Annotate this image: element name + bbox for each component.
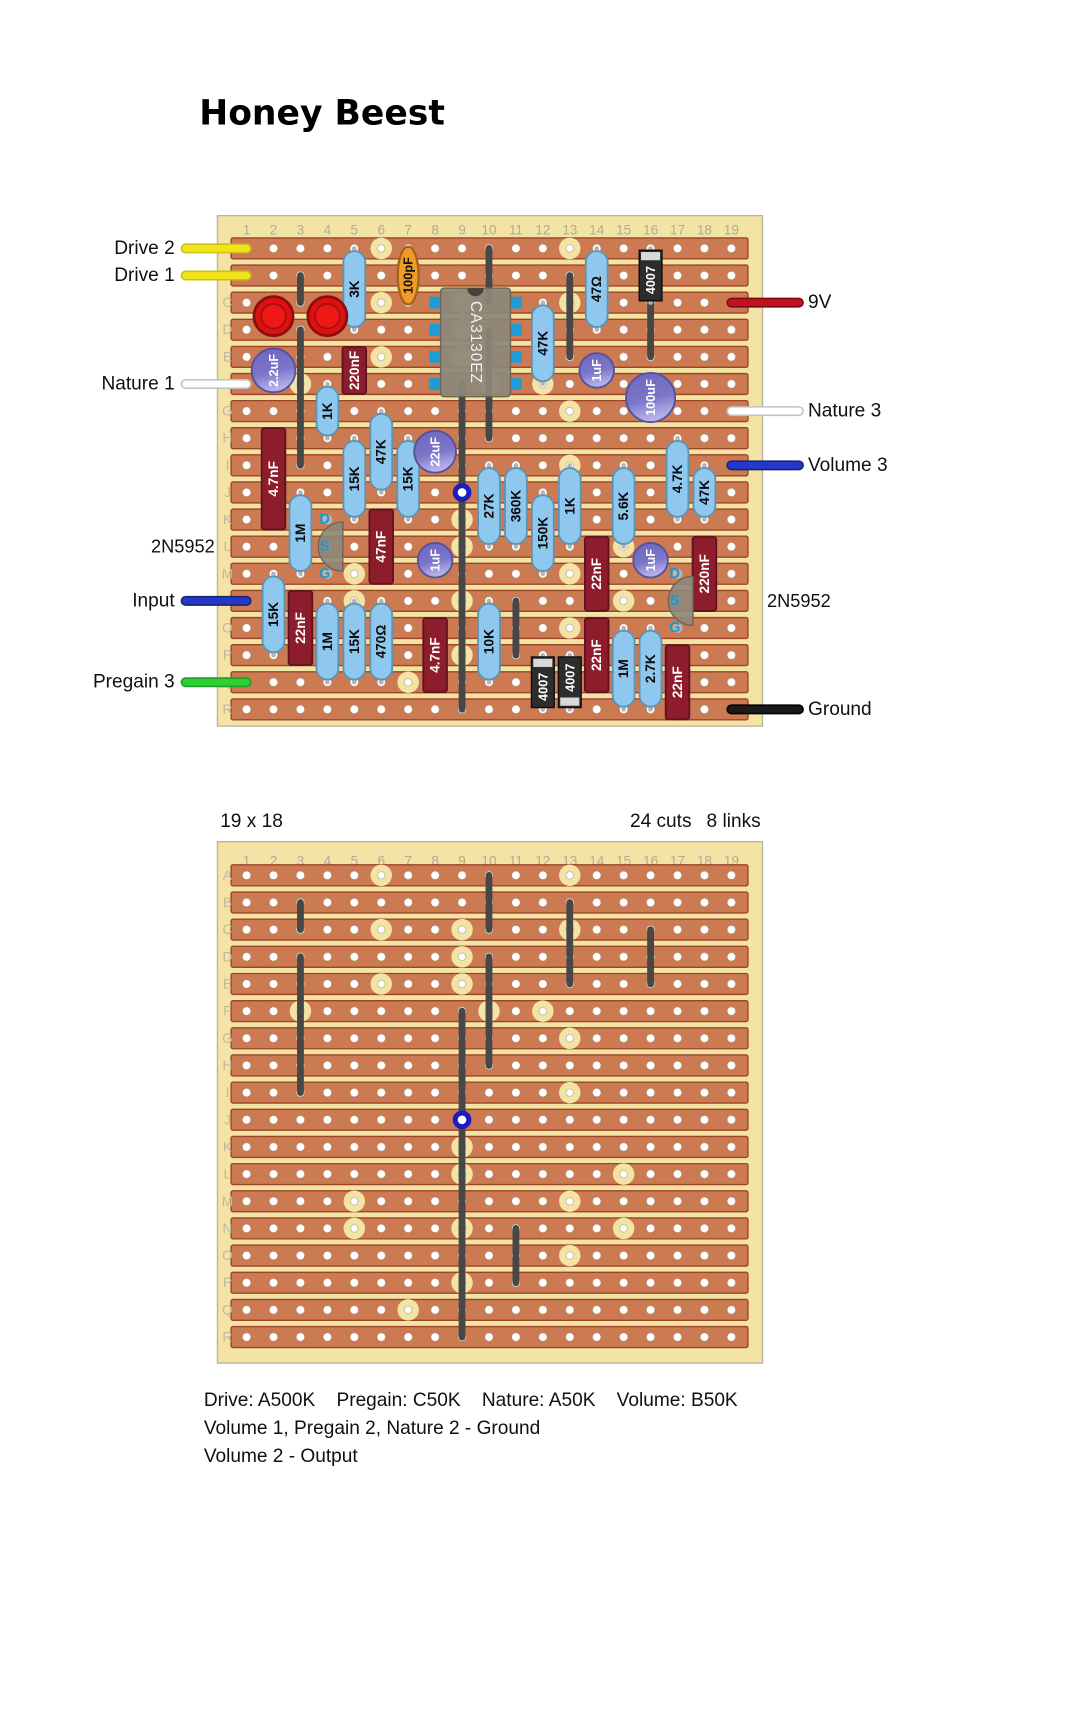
hole <box>350 542 358 550</box>
row-label: J <box>224 485 231 500</box>
hole <box>700 1333 708 1341</box>
hole <box>350 1034 358 1042</box>
column-label: 1 <box>243 223 251 238</box>
row-label: H <box>223 431 233 446</box>
row-label: R <box>223 702 233 717</box>
ic-pin-pad <box>510 351 522 363</box>
hole <box>539 1116 547 1124</box>
hole <box>242 651 250 659</box>
hole <box>619 1143 627 1151</box>
hole <box>242 871 250 879</box>
hole <box>242 705 250 713</box>
hole <box>431 1251 439 1259</box>
hole <box>404 624 412 632</box>
hole <box>700 1306 708 1314</box>
row-label: E <box>223 976 232 991</box>
hole <box>323 705 331 713</box>
hole <box>323 871 331 879</box>
hole <box>512 434 520 442</box>
hole <box>512 980 520 988</box>
hole <box>539 461 547 469</box>
hole <box>566 1333 574 1341</box>
resistor-value: 1K <box>562 497 577 515</box>
hole <box>512 1333 520 1341</box>
hole <box>269 271 277 279</box>
hole <box>377 1061 385 1069</box>
hole <box>512 1306 520 1314</box>
row-label: C <box>223 922 233 937</box>
hole <box>700 953 708 961</box>
capacitor-value: 22nF <box>293 612 308 644</box>
hole <box>485 570 493 578</box>
row-label: Q <box>222 1302 233 1317</box>
column-label: 14 <box>589 223 605 238</box>
hole <box>727 1007 735 1015</box>
hole <box>619 1333 627 1341</box>
hole <box>673 298 681 306</box>
column-label: 2 <box>270 223 278 238</box>
resistor-value: 1K <box>320 402 335 420</box>
hole <box>700 624 708 632</box>
hole <box>593 1061 601 1069</box>
hole <box>673 1224 681 1232</box>
hole <box>619 353 627 361</box>
hole <box>700 1279 708 1287</box>
hole <box>619 298 627 306</box>
connection-label-nature-1: Nature 1 <box>101 373 174 394</box>
hole <box>404 953 412 961</box>
hole <box>646 1034 654 1042</box>
capacitor-value: 1uF <box>428 549 443 572</box>
hole <box>566 1279 574 1287</box>
hole <box>269 1197 277 1205</box>
hole <box>646 1088 654 1096</box>
capacitor-value: 4.7nF <box>428 637 443 673</box>
resistor-value: 10K <box>481 629 496 654</box>
hole <box>673 1251 681 1259</box>
hole <box>296 678 304 686</box>
hole <box>323 1143 331 1151</box>
cut-hole <box>350 1225 358 1233</box>
hole <box>727 1197 735 1205</box>
connection-label-input: Input <box>132 590 175 611</box>
hole <box>646 434 654 442</box>
column-label: 19 <box>724 223 739 238</box>
hole <box>431 407 439 415</box>
hole <box>700 1197 708 1205</box>
hole <box>727 326 735 334</box>
row-label: D <box>223 949 233 964</box>
hole <box>646 1007 654 1015</box>
resistor-value: 5.6K <box>616 491 631 520</box>
hole <box>700 1251 708 1259</box>
board-size-label: 19 x 18 <box>220 811 283 832</box>
resistor-value: 15K <box>347 466 362 491</box>
cut-hole <box>404 678 412 686</box>
hole <box>485 1306 493 1314</box>
hole <box>242 1279 250 1287</box>
hole <box>619 271 627 279</box>
hole <box>431 898 439 906</box>
resistor-value: 1M <box>320 632 335 651</box>
hole <box>350 407 358 415</box>
hole <box>377 1007 385 1015</box>
hole <box>404 1088 412 1096</box>
hole <box>727 871 735 879</box>
row-label: M <box>222 566 233 581</box>
hole <box>350 1116 358 1124</box>
cut-hole <box>539 1007 547 1015</box>
resistor-value: 470Ω <box>374 625 389 659</box>
hole <box>673 1116 681 1124</box>
hole <box>619 898 627 906</box>
hole <box>619 1251 627 1259</box>
row-label: L <box>224 1167 232 1182</box>
hole <box>377 1034 385 1042</box>
hole <box>323 1007 331 1015</box>
cut-hole <box>566 1034 574 1042</box>
hole <box>700 407 708 415</box>
hole <box>700 678 708 686</box>
hole <box>512 1197 520 1205</box>
capacitor-value: 100uF <box>643 379 658 416</box>
column-label: 4 <box>324 223 332 238</box>
hole <box>404 1034 412 1042</box>
hole <box>646 461 654 469</box>
hole <box>566 434 574 442</box>
hole <box>431 1088 439 1096</box>
ic-pin-pad <box>429 378 441 390</box>
hole <box>593 871 601 879</box>
hole <box>296 1143 304 1151</box>
hole <box>377 1116 385 1124</box>
connection-label-pregain-3: Pregain 3 <box>93 672 175 693</box>
hole <box>269 1061 277 1069</box>
hole <box>700 380 708 388</box>
hole <box>404 1170 412 1178</box>
ic-pin-pad <box>429 351 441 363</box>
hole <box>512 1034 520 1042</box>
hole <box>404 925 412 933</box>
hole <box>593 461 601 469</box>
hole <box>323 1333 331 1341</box>
hole <box>673 1061 681 1069</box>
hole <box>727 1279 735 1287</box>
hole <box>673 353 681 361</box>
transistor-pin-label: D <box>319 512 330 528</box>
hole <box>727 271 735 279</box>
page-title: Honey Beest <box>199 94 445 134</box>
hole <box>700 898 708 906</box>
hole <box>323 953 331 961</box>
hole <box>377 380 385 388</box>
hole <box>539 1306 547 1314</box>
hole <box>566 380 574 388</box>
diode-value: 4007 <box>643 266 658 294</box>
hole <box>727 678 735 686</box>
hole <box>242 407 250 415</box>
ic-pin-pad <box>510 378 522 390</box>
hole <box>296 1170 304 1178</box>
ic-pin-pad <box>510 297 522 309</box>
hole <box>350 898 358 906</box>
hole <box>404 407 412 415</box>
hole <box>242 326 250 334</box>
hole <box>727 1061 735 1069</box>
hole <box>485 1279 493 1287</box>
hole <box>593 1251 601 1259</box>
hole <box>512 925 520 933</box>
hole <box>619 953 627 961</box>
cut-hole <box>377 980 385 988</box>
hole <box>242 1306 250 1314</box>
hole <box>539 597 547 605</box>
hole <box>431 244 439 252</box>
hole <box>431 980 439 988</box>
hole <box>512 1088 520 1096</box>
hole <box>700 651 708 659</box>
hole <box>593 898 601 906</box>
resistor-value: 360K <box>508 490 523 523</box>
hole <box>727 1224 735 1232</box>
row-label: G <box>222 404 233 419</box>
hole <box>619 380 627 388</box>
hole <box>296 705 304 713</box>
hole <box>404 1197 412 1205</box>
hole <box>323 353 331 361</box>
hole <box>350 1007 358 1015</box>
resistor-value: 150K <box>535 517 550 550</box>
hole <box>646 1306 654 1314</box>
hole <box>404 1333 412 1341</box>
cut-hole <box>377 872 385 880</box>
hole <box>593 1224 601 1232</box>
hole <box>431 1279 439 1287</box>
hole <box>512 1007 520 1015</box>
hole <box>377 1197 385 1205</box>
hole <box>619 1197 627 1205</box>
hole <box>269 1306 277 1314</box>
hole <box>350 1306 358 1314</box>
transistor-pin-label: G <box>669 620 680 636</box>
hole <box>269 542 277 550</box>
hole <box>404 980 412 988</box>
hole <box>377 326 385 334</box>
hole <box>593 434 601 442</box>
resistor-value: 2.7K <box>643 654 658 683</box>
hole <box>431 953 439 961</box>
hole <box>431 705 439 713</box>
hole <box>619 1007 627 1015</box>
transistor-pin-label: G <box>319 566 330 582</box>
row-label: O <box>222 621 233 636</box>
hole <box>404 1116 412 1124</box>
row-label: O <box>222 1248 233 1263</box>
hole <box>377 1279 385 1287</box>
hole <box>404 353 412 361</box>
hole <box>727 1251 735 1259</box>
hole <box>485 1170 493 1178</box>
hole <box>269 953 277 961</box>
hole <box>700 434 708 442</box>
hole <box>646 1197 654 1205</box>
capacitor-value: 1uF <box>589 359 604 382</box>
hole <box>727 980 735 988</box>
hole <box>539 1088 547 1096</box>
hole <box>512 871 520 879</box>
cut-hole <box>458 980 466 988</box>
hole <box>485 1251 493 1259</box>
resistor-value: 47K <box>374 439 389 464</box>
hole <box>242 515 250 523</box>
hole <box>593 980 601 988</box>
hole <box>646 1224 654 1232</box>
row-label: C <box>223 295 233 310</box>
resistor-value: 15K <box>266 602 281 627</box>
connection-label-9v: 9V <box>808 292 832 313</box>
hole <box>512 953 520 961</box>
hole <box>296 244 304 252</box>
hole <box>619 326 627 334</box>
hole <box>700 705 708 713</box>
hole <box>350 705 358 713</box>
resistor-value: 27K <box>481 493 496 518</box>
hole <box>566 1007 574 1015</box>
cut-hole <box>377 245 385 253</box>
hole <box>404 1007 412 1015</box>
hole <box>727 1088 735 1096</box>
hole <box>242 1251 250 1259</box>
hole <box>673 326 681 334</box>
hole <box>673 980 681 988</box>
hole <box>700 298 708 306</box>
hole <box>404 1224 412 1232</box>
hole <box>727 434 735 442</box>
cut-hole <box>566 570 574 578</box>
cut-hole <box>404 1306 412 1314</box>
hole <box>350 1143 358 1151</box>
hole <box>323 271 331 279</box>
resistor-value: 15K <box>401 466 416 491</box>
cut-hole <box>377 299 385 307</box>
hole <box>700 1061 708 1069</box>
hole <box>673 380 681 388</box>
hole <box>539 925 547 933</box>
diode-cathode-stripe <box>533 659 552 667</box>
hole <box>431 1333 439 1341</box>
hole <box>242 980 250 988</box>
hole <box>377 1224 385 1232</box>
hole <box>673 244 681 252</box>
hole <box>269 898 277 906</box>
hole <box>296 1279 304 1287</box>
hole <box>431 1143 439 1151</box>
cut-hole <box>620 1170 628 1178</box>
capacitor-value: 220nF <box>697 554 712 593</box>
hole <box>350 1333 358 1341</box>
hole <box>512 570 520 578</box>
hole <box>485 1224 493 1232</box>
pots-caption: Drive: A500K Pregain: C50K Nature: A50K … <box>204 1390 738 1411</box>
hole <box>512 1143 520 1151</box>
hole <box>404 1143 412 1151</box>
hole <box>431 488 439 496</box>
led-lens <box>261 304 286 329</box>
diode-cathode-stripe <box>641 252 660 260</box>
hole <box>269 1333 277 1341</box>
hole <box>646 898 654 906</box>
cut-hole <box>566 1197 574 1205</box>
hole <box>673 925 681 933</box>
hole <box>242 434 250 442</box>
hole <box>700 1088 708 1096</box>
hole <box>700 1224 708 1232</box>
row-label: M <box>222 1194 233 1209</box>
hole <box>593 515 601 523</box>
hole <box>646 1061 654 1069</box>
component-layout-board: 12345678910111213141516171819ABCDEFGHIJK… <box>93 216 888 726</box>
hole <box>323 1306 331 1314</box>
cut-hole <box>377 926 385 934</box>
hole <box>323 1088 331 1096</box>
hole <box>727 380 735 388</box>
column-label: 11 <box>509 223 523 238</box>
resistor-value: 4.7K <box>670 464 685 493</box>
hole <box>431 1061 439 1069</box>
hole <box>404 597 412 605</box>
cut-hole <box>620 597 628 605</box>
hole <box>404 898 412 906</box>
hole <box>727 515 735 523</box>
hole <box>269 244 277 252</box>
hole <box>619 1061 627 1069</box>
output-wiring-caption: Volume 2 - Output <box>204 1446 359 1467</box>
hole <box>242 1088 250 1096</box>
hole <box>673 407 681 415</box>
hole <box>619 434 627 442</box>
hole <box>485 1143 493 1151</box>
hole <box>485 1197 493 1205</box>
hole <box>566 1306 574 1314</box>
hole <box>242 570 250 578</box>
hole <box>431 1306 439 1314</box>
hole <box>377 953 385 961</box>
capacitor-value: 100pF <box>401 257 416 294</box>
hole <box>700 1143 708 1151</box>
hole <box>323 1170 331 1178</box>
hole <box>323 1116 331 1124</box>
cuts-links-board: 12345678910111213141516171819ABCDEFGHIJK… <box>217 842 762 1363</box>
hole <box>350 1251 358 1259</box>
hole <box>350 1088 358 1096</box>
row-label: H <box>223 1058 233 1073</box>
hole <box>431 871 439 879</box>
hole <box>377 1333 385 1341</box>
hole <box>431 925 439 933</box>
hole <box>566 1143 574 1151</box>
hole <box>619 1116 627 1124</box>
resistor-value: 15K <box>347 629 362 654</box>
hole <box>296 1197 304 1205</box>
hole <box>350 925 358 933</box>
row-label: P <box>223 1275 232 1290</box>
hole <box>727 1116 735 1124</box>
hole <box>593 925 601 933</box>
hole <box>323 461 331 469</box>
hole <box>269 1007 277 1015</box>
hole <box>619 1306 627 1314</box>
hole <box>242 1333 250 1341</box>
